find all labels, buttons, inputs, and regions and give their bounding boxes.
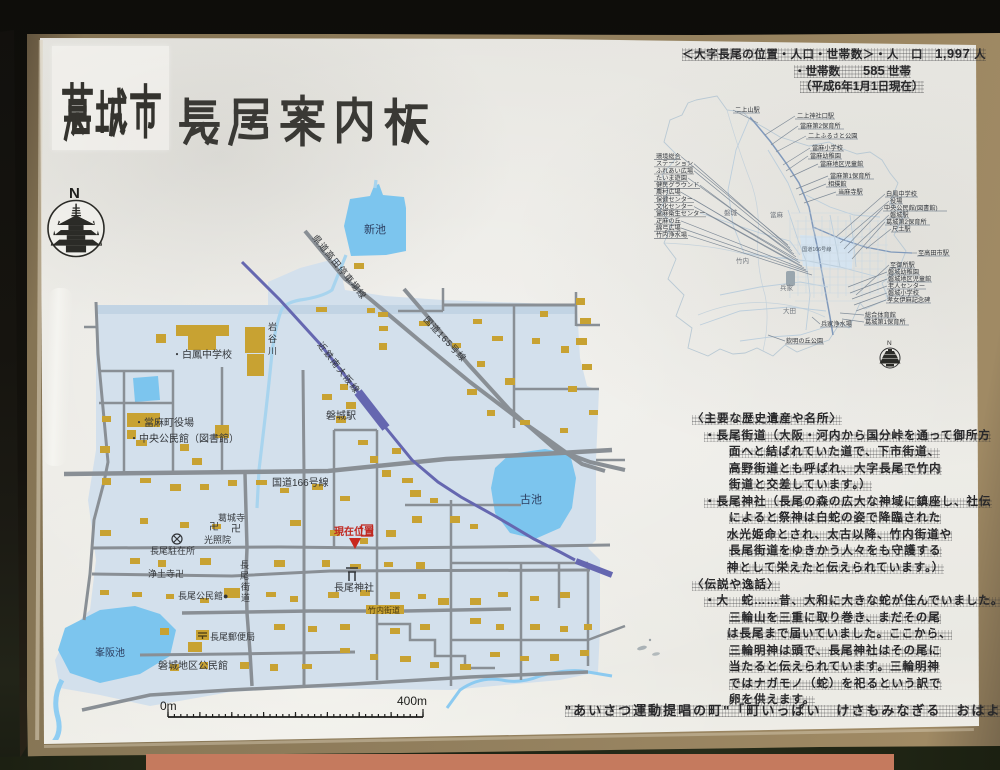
svg-text:ふれあい広場: ふれあい広場 — [656, 167, 693, 175]
svg-text:磐城駅: 磐城駅 — [326, 409, 356, 422]
svg-text:保健センター: 保健センター — [656, 195, 693, 203]
svg-text:0m: 0m — [160, 699, 177, 713]
svg-text:葛城寺: 葛城寺 — [218, 512, 245, 523]
svg-text:當麻: 當麻 — [770, 210, 784, 219]
svg-text:竹内浄水場: 竹内浄水場 — [656, 231, 687, 239]
svg-text:新池: 新池 — [364, 222, 386, 236]
svg-text:N: N — [887, 340, 892, 347]
svg-text:兵家: 兵家 — [780, 283, 794, 292]
svg-text:磐城地区公民館: 磐城地区公民館 — [158, 659, 228, 672]
svg-text:道: 道 — [241, 592, 250, 603]
svg-text:尾: 尾 — [240, 571, 249, 581]
svg-text:峯阪池: 峯阪池 — [95, 646, 125, 659]
svg-text:當麻衛生センター: 當麻衛生センター — [656, 210, 706, 218]
svg-text:・中央公民館（図書館）: ・中央公民館（図書館） — [129, 432, 239, 445]
svg-text:岩: 岩 — [268, 321, 277, 332]
svg-text:竹内街道: 竹内街道 — [368, 605, 400, 615]
svg-text:綿弓広場: 綿弓広場 — [656, 224, 681, 232]
svg-text:長尾神社: 長尾神社 — [334, 581, 374, 594]
svg-text:国道166号線: 国道166号線 — [802, 245, 831, 253]
svg-text:長尾公民館●: 長尾公民館● — [178, 590, 228, 601]
svg-text:街: 街 — [241, 581, 250, 592]
svg-text:・當麻町役場: ・當麻町役場 — [134, 416, 194, 429]
svg-text:古池: 古池 — [520, 493, 542, 506]
svg-text:卍: 卍 — [231, 523, 241, 535]
svg-text:磐城: 磐城 — [724, 208, 738, 217]
svg-text:長尾郵便局: 長尾郵便局 — [210, 631, 255, 642]
svg-text:国道166号線: 国道166号線 — [272, 476, 329, 489]
svg-text:400m: 400m — [397, 694, 427, 708]
svg-text:浄土寺卍: 浄土寺卍 — [148, 568, 184, 579]
svg-text:長: 長 — [240, 560, 249, 570]
svg-text:大田: 大田 — [783, 306, 796, 315]
svg-text:N: N — [69, 185, 80, 202]
svg-text:疋麻の丘: 疋麻の丘 — [656, 217, 681, 225]
svg-text:環境総合: 環境総合 — [656, 153, 681, 161]
svg-text:光照院: 光照院 — [204, 534, 231, 545]
svg-text:農村広場: 農村広場 — [656, 188, 681, 196]
svg-text:・白鳳中学校: ・白鳳中学校 — [172, 348, 232, 361]
svg-text:たいま遊園: たいま遊園 — [656, 174, 687, 182]
svg-text:川: 川 — [268, 346, 277, 356]
svg-text:谷: 谷 — [268, 334, 277, 344]
svg-text:卍: 卍 — [209, 521, 219, 533]
svg-text:健民グラウンド: 健民グラウンド — [656, 181, 699, 189]
svg-text:竹内: 竹内 — [736, 256, 749, 265]
svg-text:文化センター: 文化センター — [656, 203, 693, 211]
svg-text:長尾駐在所: 長尾駐在所 — [150, 545, 195, 556]
